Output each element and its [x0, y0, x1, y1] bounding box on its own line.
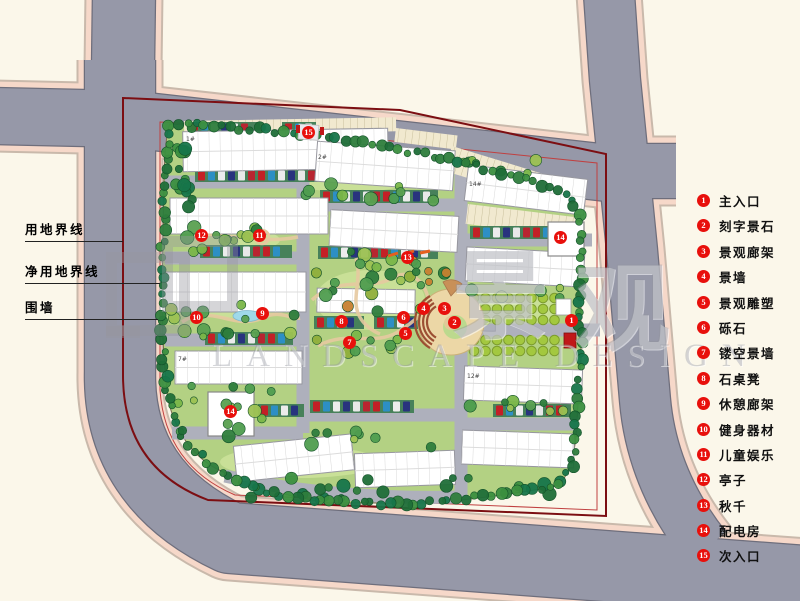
legend-label: 休憩廊架 [719, 394, 775, 413]
legend-item: 10健身器材 [697, 423, 775, 436]
label-land-use-boundary: 用地界线 [25, 219, 123, 242]
legend-dot: 3 [697, 245, 710, 258]
map-marker: 4 [417, 302, 430, 315]
legend-label: 健身器材 [719, 420, 775, 439]
building-number: 2# [318, 154, 327, 161]
legend-item: 14配电房 [697, 524, 775, 537]
map-marker: 3 [438, 302, 451, 315]
legend-item: 3景观廊架 [697, 245, 775, 258]
legend-label: 镂空景墙 [719, 343, 775, 362]
legend-label: 砾石 [719, 318, 747, 337]
map-marker: 5 [399, 327, 412, 340]
map-marker: 1 [565, 314, 578, 327]
legend-item: 7镂空景墙 [697, 346, 775, 359]
legend-dot: 4 [697, 270, 710, 283]
legend-item: 11儿童娱乐 [697, 448, 775, 461]
legend-dot: 13 [697, 499, 710, 512]
legend-label: 景观雕塑 [719, 293, 775, 312]
legend-item: 12亭子 [697, 473, 775, 486]
map-marker: 14 [224, 405, 237, 418]
legend-item: 4景墙 [697, 270, 775, 283]
legend-label: 景观廊架 [719, 242, 775, 261]
label-net-land-use-boundary: 净用地界线 [25, 261, 160, 284]
site-plan-page: 景 观 LANDSCAPE DESIGN 15 12 11 14 13 1 2 … [0, 0, 800, 601]
legend-item: 6砾石 [697, 321, 775, 334]
map-marker: 8 [335, 315, 348, 328]
legend-dot: 5 [697, 296, 710, 309]
legend-item: 2刻字景石 [697, 219, 775, 232]
legend-item: 15次入口 [697, 549, 775, 562]
map-marker: 7 [343, 336, 356, 349]
building-number: 7# [178, 356, 187, 363]
legend-label: 配电房 [719, 521, 761, 540]
legend-item: 1主入口 [697, 194, 775, 207]
legend-label: 景墙 [719, 267, 747, 286]
legend-label: 次入口 [719, 546, 761, 565]
map-marker: 11 [253, 229, 266, 242]
map-marker: 12 [195, 229, 208, 242]
legend-dot: 11 [697, 448, 710, 461]
legend-item: 5景观雕塑 [697, 296, 775, 309]
building-number: 14# [469, 181, 482, 188]
legend-dot: 7 [697, 346, 710, 359]
legend-dot: 10 [697, 423, 710, 436]
legend-label: 秋千 [719, 496, 747, 515]
legend-dot: 12 [697, 473, 710, 486]
legend-label: 亭子 [719, 470, 747, 489]
legend-dot: 2 [697, 219, 710, 232]
building-number: 1# [186, 136, 195, 143]
map-marker: 10 [190, 311, 203, 324]
legend-dot: 1 [697, 194, 710, 207]
building-number: 12# [467, 373, 480, 380]
map-marker: 2 [448, 316, 461, 329]
legend-dot: 6 [697, 321, 710, 334]
legend-label: 刻字景石 [719, 216, 775, 235]
legend-label: 儿童娱乐 [719, 445, 775, 464]
legend-item: 8石桌凳 [697, 372, 775, 385]
legend-label: 石桌凳 [719, 369, 761, 388]
legend-dot: 15 [697, 549, 710, 562]
legend-dot: 8 [697, 372, 710, 385]
legend-label: 主入口 [719, 191, 761, 210]
legend: 1主入口 2刻字景石 3景观廊架 4景墙 5景观雕塑 6砾石 7镂空景墙 8石桌… [697, 194, 775, 575]
legend-item: 13秋千 [697, 499, 775, 512]
map-marker: 14 [554, 231, 567, 244]
legend-item: 9休憩廊架 [697, 397, 775, 410]
legend-dot: 9 [697, 397, 710, 410]
label-enclosure-wall: 围墙 [25, 297, 158, 320]
map-marker: 9 [256, 307, 269, 320]
map-marker: 15 [302, 126, 315, 139]
legend-dot: 14 [697, 524, 710, 537]
map-marker: 13 [401, 251, 414, 264]
map-marker: 6 [397, 311, 410, 324]
